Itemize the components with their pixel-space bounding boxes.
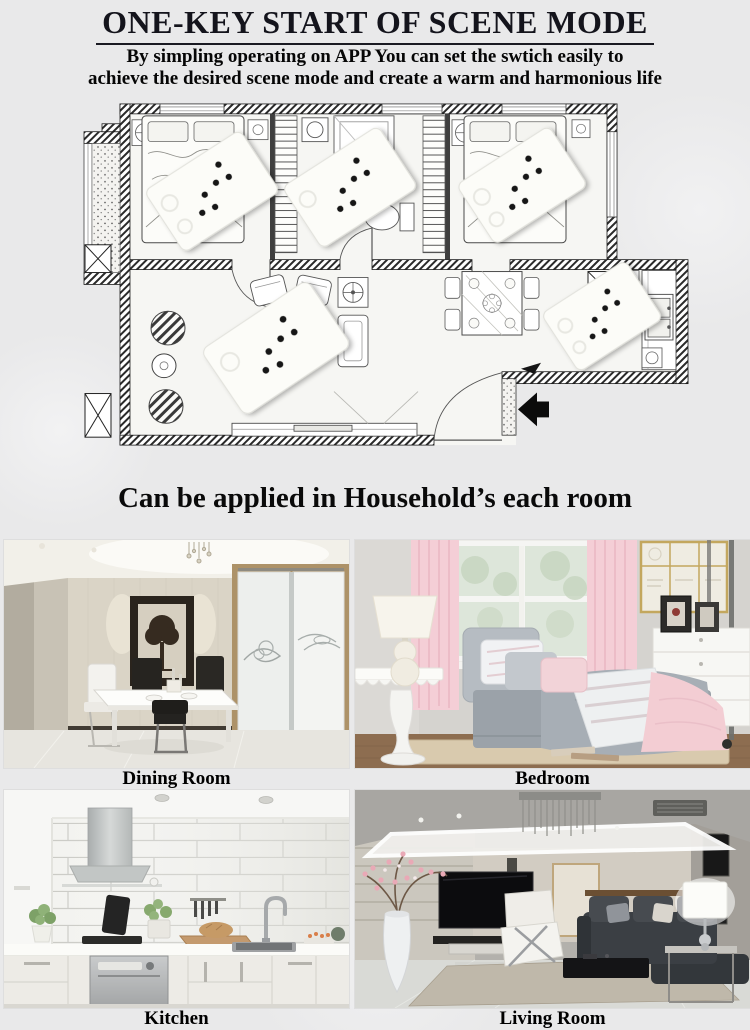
dishwasher [90,956,168,1008]
subtitle-line-2: achieve the desired scene mode and creat… [0,68,750,90]
header: ONE-KEY START OF SCENE MODE [0,4,750,45]
room-label-bedroom: Bedroom [355,768,750,790]
dining-room-photo [4,540,349,768]
subtitle-line-1: By simpling operating on APP You can set… [0,46,750,68]
entry-pier [502,379,516,436]
entry-arrow-icon [518,393,549,427]
room-label-living: Living Room [355,1008,750,1030]
cabinets [4,956,349,1008]
kitchen-photo [4,790,349,1008]
wardrobe-right [423,116,445,253]
living-room-photo [355,790,750,1008]
room-label-dining: Dining Room [4,768,349,790]
bedroom-photo [355,540,750,768]
page-title: ONE-KEY START OF SCENE MODE [96,4,654,45]
floor-plan-diagram [82,96,692,458]
room-label-kitchen: Kitchen [4,1008,349,1030]
sliding-door [232,564,349,750]
air-vent [653,800,707,816]
promo-page: ONE-KEY START OF SCENE MODE By simpling … [0,0,750,1030]
caption: Can be applied in Household’s each room [0,482,750,515]
